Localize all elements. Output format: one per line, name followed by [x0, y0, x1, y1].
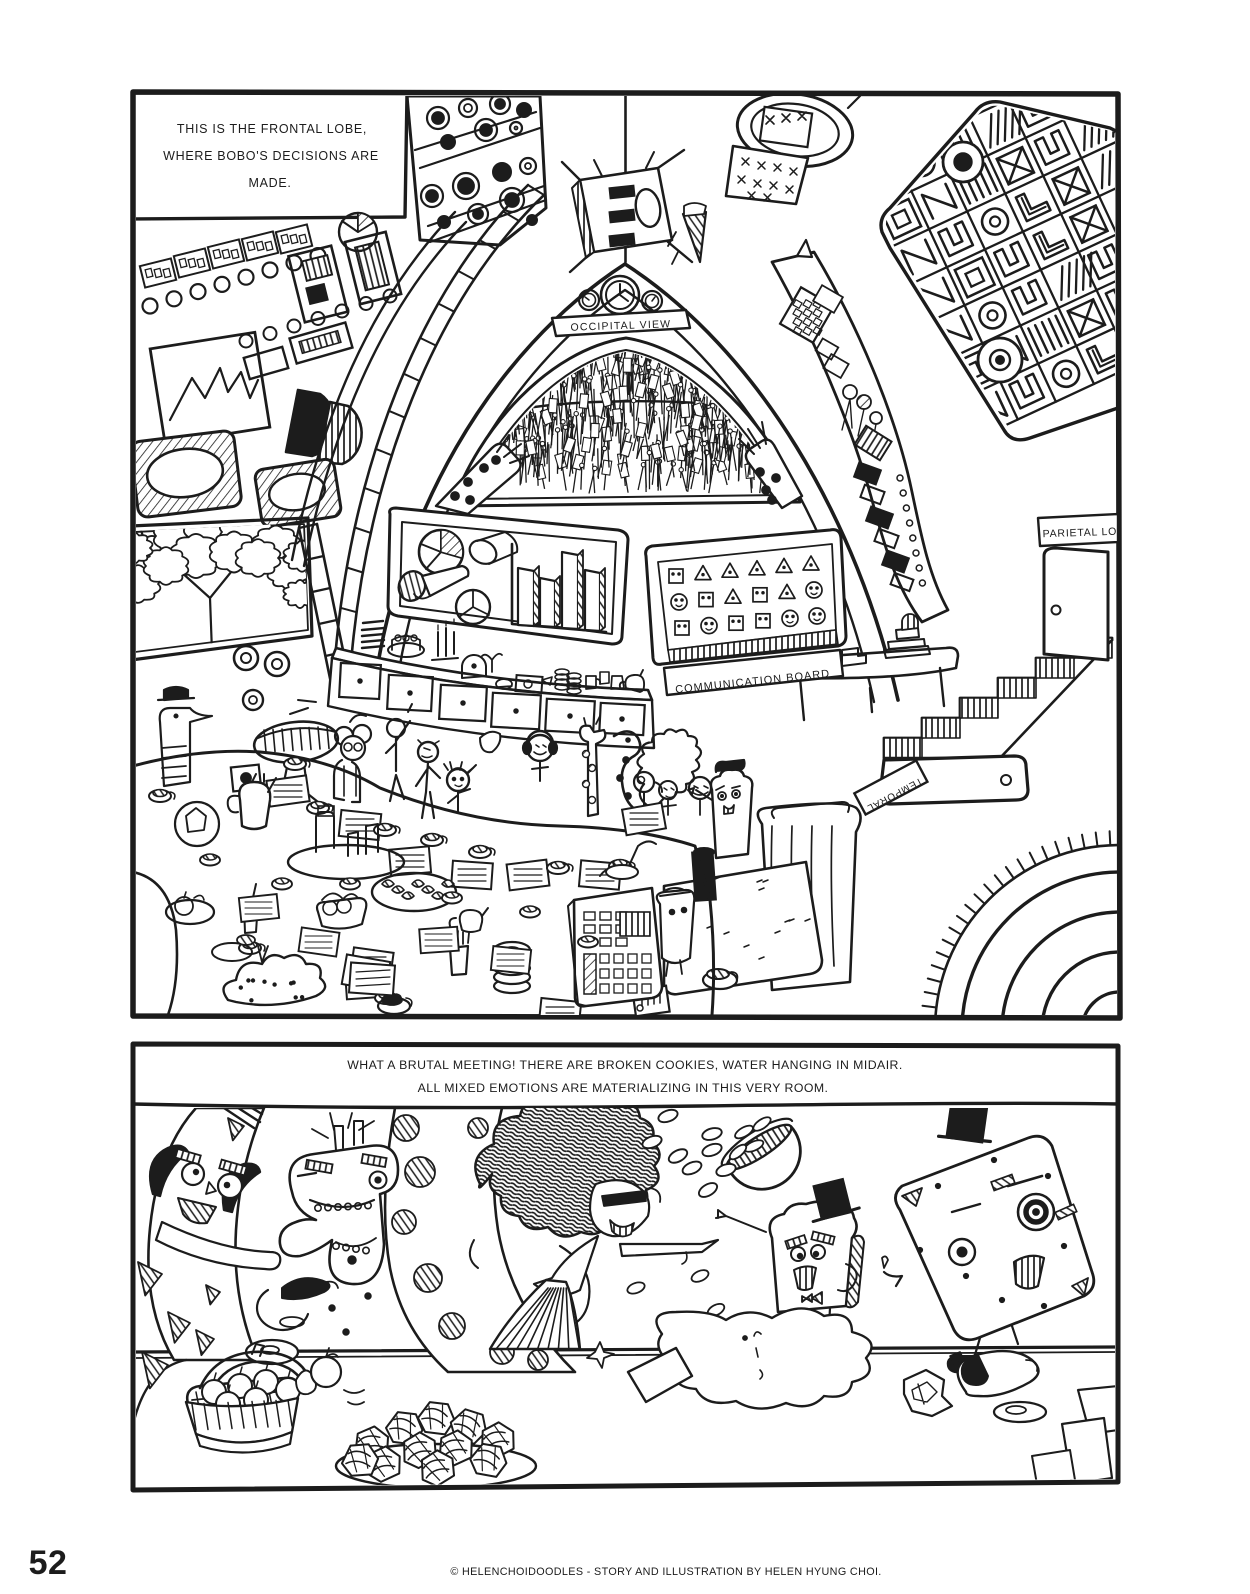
svg-text:THIS IS THE FRONTAL LOBE,: THIS IS THE FRONTAL LOBE, — [177, 122, 367, 136]
svg-text:ALL MIXED EMOTIONS ARE MATERIA: ALL MIXED EMOTIONS ARE MATERIALIZING IN … — [418, 1081, 829, 1095]
svg-text:MADE.: MADE. — [248, 176, 291, 190]
svg-text:52: 52 — [29, 1544, 68, 1582]
svg-text:WHERE BOBO'S DECISIONS ARE: WHERE BOBO'S DECISIONS ARE — [163, 149, 379, 163]
svg-text:WHAT A BRUTAL MEETING! THERE A: WHAT A BRUTAL MEETING! THERE ARE BROKEN … — [347, 1058, 903, 1072]
svg-text:© HELENCHOIDOODLES - STORY AND: © HELENCHOIDOODLES - STORY AND ILLUSTRAT… — [450, 1566, 881, 1578]
